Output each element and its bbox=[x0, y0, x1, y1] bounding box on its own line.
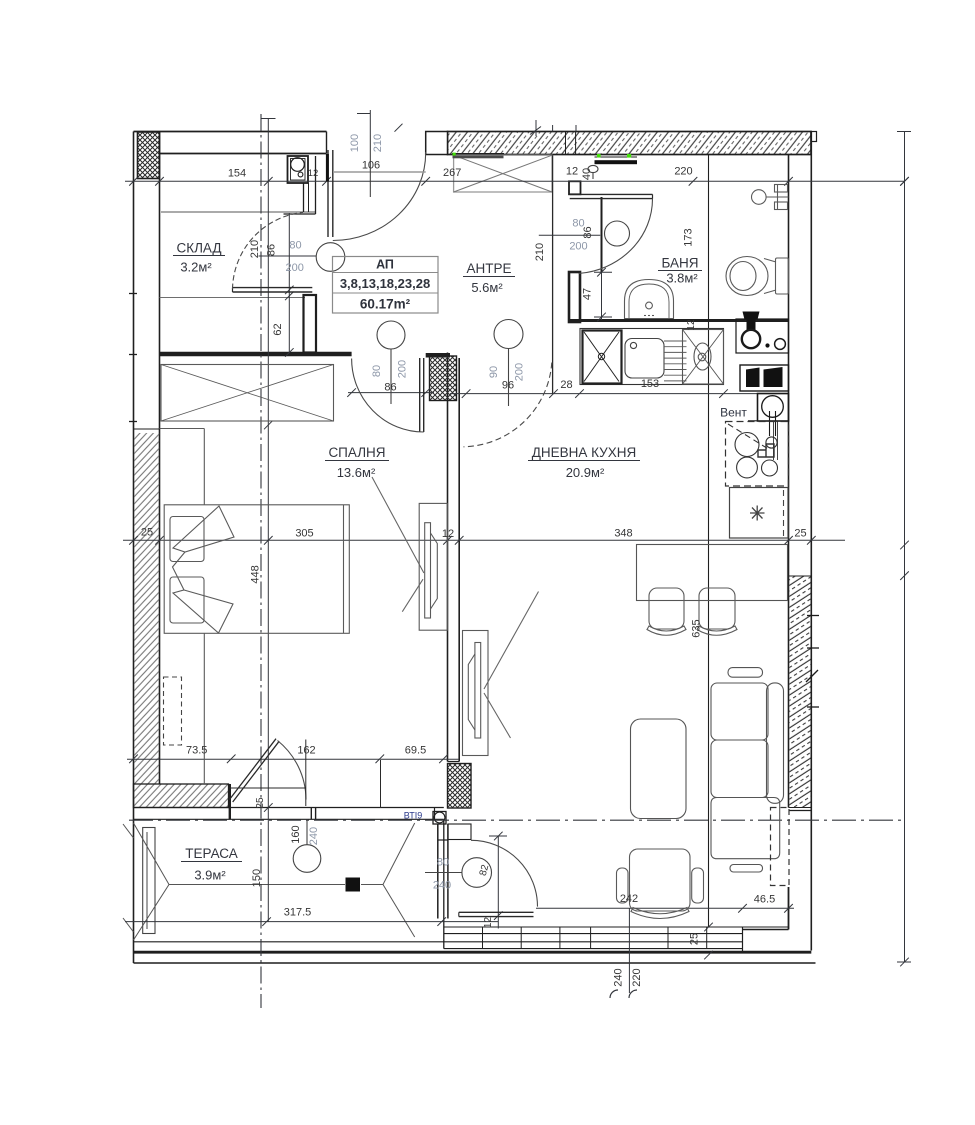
svg-text:АП: АП bbox=[376, 258, 394, 272]
svg-text:ТЕРАСА: ТЕРАСА bbox=[185, 846, 238, 861]
svg-text:БАНЯ: БАНЯ bbox=[661, 256, 698, 271]
svg-text:Вент: Вент bbox=[720, 406, 747, 420]
svg-text:160: 160 bbox=[290, 825, 302, 843]
svg-text:162: 162 bbox=[297, 745, 315, 757]
svg-text:150: 150 bbox=[251, 869, 263, 887]
svg-text:80: 80 bbox=[289, 240, 301, 252]
svg-text:25: 25 bbox=[794, 528, 806, 540]
svg-text:240: 240 bbox=[433, 880, 451, 892]
svg-text:СПАЛНЯ: СПАЛНЯ bbox=[328, 445, 385, 460]
svg-text:АНТРЕ: АНТРЕ bbox=[466, 261, 511, 276]
svg-text:86: 86 bbox=[582, 226, 594, 238]
svg-text:267: 267 bbox=[443, 167, 461, 179]
svg-text:ДНЕВНА КУХНЯ: ДНЕВНА КУХНЯ bbox=[532, 445, 637, 460]
svg-text:242: 242 bbox=[620, 893, 638, 905]
svg-text:210: 210 bbox=[372, 134, 384, 152]
svg-text:80: 80 bbox=[371, 365, 383, 377]
svg-text:13.6м²: 13.6м² bbox=[337, 465, 376, 480]
svg-text:73.5: 73.5 bbox=[186, 745, 207, 757]
svg-text:80: 80 bbox=[437, 857, 449, 869]
svg-text:210: 210 bbox=[249, 240, 261, 258]
svg-text:220: 220 bbox=[631, 968, 643, 986]
svg-text:ВТІ9: ВТІ9 bbox=[404, 811, 422, 821]
svg-text:60.17m²: 60.17m² bbox=[360, 297, 411, 312]
svg-text:635: 635 bbox=[690, 619, 702, 637]
svg-text:3.2м²: 3.2м² bbox=[180, 260, 212, 275]
svg-text:62: 62 bbox=[272, 323, 284, 335]
svg-text:154: 154 bbox=[228, 168, 246, 180]
svg-text:348: 348 bbox=[614, 528, 632, 540]
svg-text:240: 240 bbox=[308, 827, 320, 845]
svg-text:20.9м²: 20.9м² bbox=[566, 465, 605, 480]
svg-text:25: 25 bbox=[689, 933, 701, 945]
svg-text:СКЛАД: СКЛАД bbox=[176, 241, 221, 256]
svg-text:200: 200 bbox=[569, 241, 587, 253]
svg-text:173: 173 bbox=[683, 228, 695, 246]
svg-text:69.5: 69.5 bbox=[405, 745, 426, 757]
svg-text:12: 12 bbox=[686, 319, 697, 331]
svg-text:200: 200 bbox=[397, 360, 409, 378]
svg-text:5.6м²: 5.6м² bbox=[471, 280, 503, 295]
svg-text:220: 220 bbox=[674, 166, 692, 178]
svg-text:25: 25 bbox=[255, 797, 266, 809]
svg-text:12: 12 bbox=[566, 166, 578, 178]
svg-text:106: 106 bbox=[362, 160, 380, 172]
svg-text:100: 100 bbox=[349, 134, 361, 152]
svg-text:12: 12 bbox=[483, 917, 494, 929]
svg-text:3.9м²: 3.9м² bbox=[194, 868, 226, 883]
svg-text:96: 96 bbox=[502, 380, 514, 392]
svg-text:12: 12 bbox=[442, 528, 454, 540]
svg-text:448: 448 bbox=[249, 565, 261, 583]
svg-text:3.8м²: 3.8м² bbox=[666, 271, 698, 286]
svg-text:200: 200 bbox=[514, 363, 526, 381]
svg-text:200: 200 bbox=[286, 262, 304, 274]
svg-text:317.5: 317.5 bbox=[284, 907, 312, 919]
svg-text:25: 25 bbox=[141, 527, 153, 539]
svg-text:3,8,13,18,23,28: 3,8,13,18,23,28 bbox=[340, 276, 430, 291]
svg-text:240: 240 bbox=[613, 968, 625, 986]
svg-text:46.5: 46.5 bbox=[754, 894, 775, 906]
svg-text:305: 305 bbox=[295, 528, 313, 540]
svg-text:47: 47 bbox=[582, 288, 594, 300]
svg-text:86: 86 bbox=[266, 244, 278, 256]
svg-text:153: 153 bbox=[641, 378, 659, 390]
svg-text:12: 12 bbox=[308, 168, 319, 179]
svg-text:210: 210 bbox=[534, 243, 546, 261]
svg-text:40: 40 bbox=[581, 168, 593, 180]
svg-text:28: 28 bbox=[560, 379, 572, 391]
svg-text:90: 90 bbox=[488, 366, 500, 378]
svg-text:86: 86 bbox=[384, 382, 396, 394]
